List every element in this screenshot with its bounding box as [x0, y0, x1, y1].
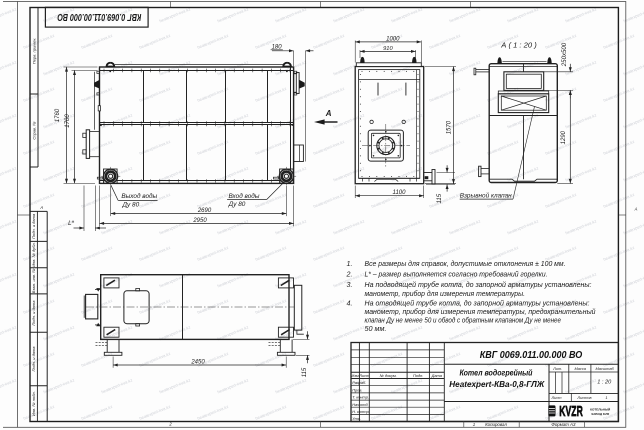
svg-text:115: 115 [437, 193, 443, 203]
svg-text:Взам. инв. №: Взам. инв. № [31, 268, 36, 293]
svg-text:Подп. и дата: Подп. и дата [31, 346, 36, 372]
svg-text:Справ. №: Справ. № [31, 121, 36, 140]
svg-text:180: 180 [272, 44, 283, 50]
svg-text:Котел водогрейный: Котел водогрейный [460, 369, 533, 378]
svg-text:Листов: Листов [576, 395, 591, 400]
svg-text:1760: 1760 [55, 108, 61, 122]
svg-text:На подводящей трубе котла, до: На подводящей трубе котла, до запорной а… [365, 281, 592, 289]
svg-text:манометр, прибор для измерения: манометр, прибор для измерения температу… [365, 308, 596, 316]
svg-text:клапан Ду не менее 50 и обвод: клапан Ду не менее 50 и обвод с обратным… [365, 317, 562, 325]
svg-text:Все размеры для справок, допус: Все размеры для справок, допустимые откл… [365, 260, 566, 268]
svg-text:Heatexpert-КВа-0,8-ГЛЖ: Heatexpert-КВа-0,8-ГЛЖ [449, 380, 544, 389]
svg-text:Инв. № дубл.: Инв. № дубл. [31, 242, 36, 267]
svg-text:А: А [634, 207, 638, 212]
svg-text:Перв. примен.: Перв. примен. [31, 38, 36, 65]
svg-text:910: 910 [383, 46, 393, 52]
svg-text:1 : 20: 1 : 20 [597, 380, 612, 386]
svg-text:№ докум.: № докум. [380, 373, 397, 378]
svg-text:1000: 1000 [386, 36, 400, 42]
svg-text:Изм: Изм [351, 373, 359, 378]
svg-text:Лит.: Лит. [552, 366, 562, 371]
svg-text:1.: 1. [347, 260, 353, 268]
svg-text:1700: 1700 [65, 114, 71, 128]
svg-text:1100: 1100 [393, 190, 407, 196]
svg-text:Ду 80: Ду 80 [121, 202, 139, 209]
svg-text:А: А [325, 109, 332, 118]
svg-text:Подп. и дата: Подп. и дата [31, 300, 36, 326]
svg-text:115: 115 [302, 367, 308, 377]
svg-text:250х500: 250х500 [561, 42, 568, 67]
svg-text:L* – размер выполняется соглас: L* – размер выполняется согласно требова… [365, 271, 548, 279]
svg-text:Взрывной клапан: Взрывной клапан [460, 192, 512, 200]
svg-text:3.: 3. [347, 281, 353, 289]
svg-text:2.: 2. [346, 271, 353, 279]
svg-text:2690: 2690 [197, 208, 212, 214]
svg-text:Ду 80: Ду 80 [228, 201, 246, 208]
svg-text:2450: 2450 [190, 359, 205, 365]
svg-text:Лист: Лист [358, 373, 370, 378]
svg-text:1290: 1290 [561, 130, 567, 144]
svg-text:Подп.: Подп. [413, 373, 423, 378]
svg-text:манометр, прибор для измерения: манометр, прибор для измерения температу… [365, 290, 526, 298]
svg-text:Формат А3: Формат А3 [551, 422, 576, 427]
svg-text:1570: 1570 [447, 120, 453, 134]
svg-text:50 мм.: 50 мм. [365, 325, 387, 333]
svg-text:Т. контр.: Т. контр. [352, 395, 369, 400]
svg-text:L*: L* [68, 220, 74, 227]
svg-text:ЗАВОД KZR: ЗАВОД KZR [591, 412, 610, 416]
svg-text:На отводящей трубе котла, до з: На отводящей трубе котла, до запорной ар… [365, 299, 590, 307]
svg-text:А: А [39, 205, 43, 210]
svg-text:KVZR: KVZR [559, 403, 583, 420]
svg-text:2950: 2950 [192, 218, 207, 224]
svg-text:А ( 1 : 20 ): А ( 1 : 20 ) [500, 40, 537, 49]
svg-text:КВГ 0069.011.00.000 ВО: КВГ 0069.011.00.000 ВО [480, 350, 583, 361]
svg-text:Вход воды: Вход воды [228, 192, 259, 200]
svg-text:Масштаб: Масштаб [596, 366, 615, 371]
svg-text:КОТЕЛЬНЫЙ: КОТЕЛЬНЫЙ [590, 407, 611, 411]
svg-text:Нач.отд.: Нач.отд. [352, 402, 368, 407]
svg-text:Разраб.: Разраб. [352, 380, 366, 385]
svg-text:Выход воды: Выход воды [121, 192, 157, 200]
svg-text:Подп. и дата: Подп. и дата [31, 213, 36, 239]
svg-text:Утв.: Утв. [352, 416, 361, 421]
svg-text:1: 1 [605, 395, 607, 400]
svg-text:Дата: Дата [431, 373, 443, 378]
svg-text:Инв. № подл.: Инв. № подл. [31, 391, 36, 416]
svg-text:Лист: Лист [550, 395, 562, 400]
svg-text:Копировал: Копировал [485, 422, 507, 427]
svg-text:4.: 4. [347, 299, 353, 307]
svg-text:Пров.: Пров. [352, 387, 362, 392]
svg-text:КВГ 0.069.011.00.000 ВО: КВГ 0.069.011.00.000 ВО [57, 11, 141, 22]
svg-text:Масса: Масса [574, 366, 586, 371]
svg-text:Н. контр.: Н. контр. [352, 409, 370, 414]
